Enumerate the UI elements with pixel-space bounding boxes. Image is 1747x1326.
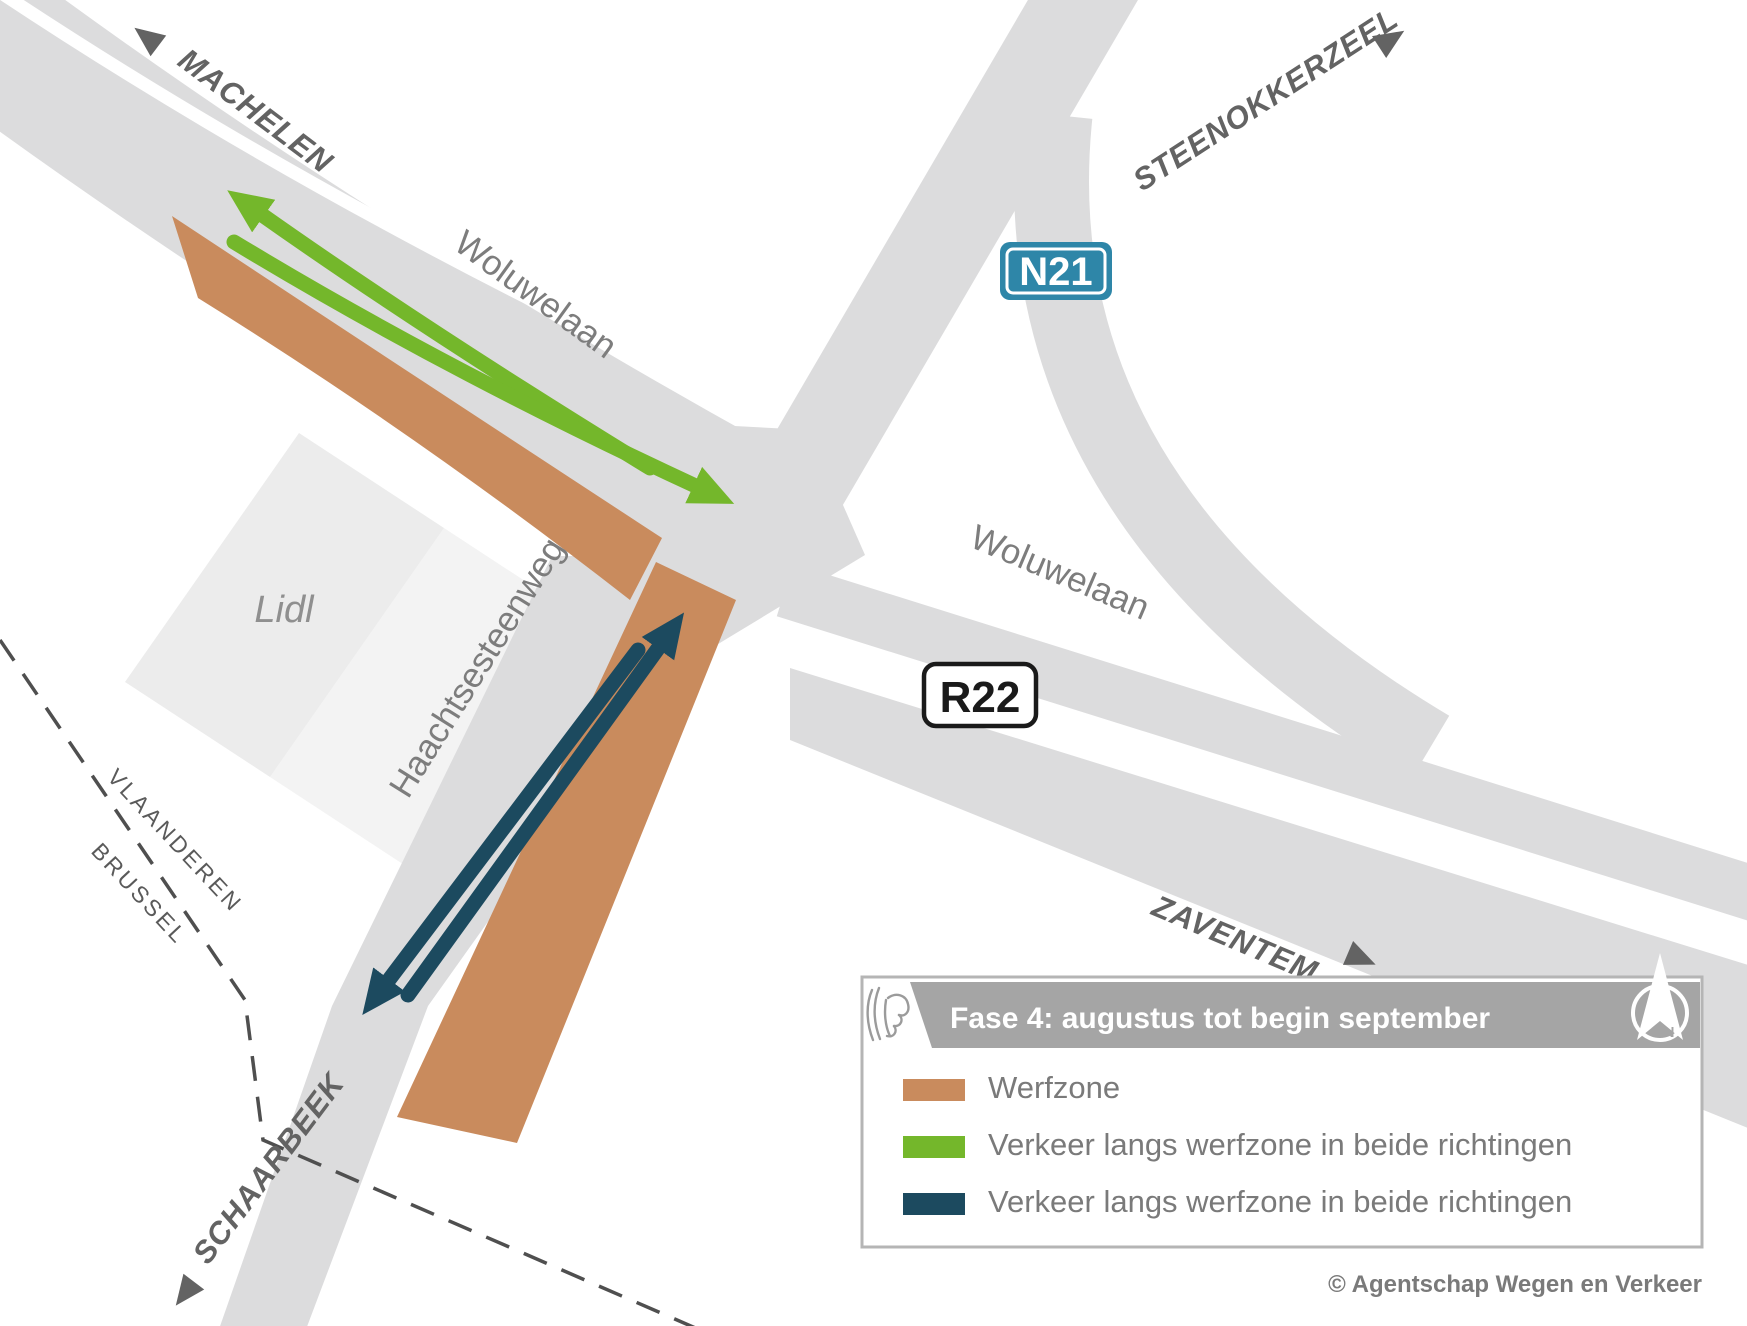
legend-label-green-route: Verkeer langs werfzone in beide richting… (988, 1127, 1572, 1162)
legend-swatch-navy-route (903, 1193, 965, 1215)
roadworks-map-screenshot: Lidl VLAANDEREN BRUSSEL Woluwelaan Woluw… (0, 0, 1747, 1326)
legend-swatch-werfzone (903, 1079, 965, 1101)
legend-label-navy-route: Verkeer langs werfzone in beide richting… (988, 1184, 1572, 1219)
n21-badge-label: N21 (1019, 250, 1092, 294)
compass-north-letter: N (1664, 1024, 1675, 1041)
legend-title: Fase 4: augustus tot begin september (950, 1002, 1490, 1035)
r22-badge-label: R22 (940, 673, 1021, 722)
roadworks-map-phase4: Lidl VLAANDEREN BRUSSEL Woluwelaan Woluw… (0, 0, 1747, 1326)
lidl-label: Lidl (254, 589, 315, 631)
legend-label-werfzone: Werfzone (988, 1070, 1120, 1105)
copyright-credit: © Agentschap Wegen en Verkeer (1328, 1271, 1702, 1298)
legend-item-green-route: Verkeer langs werfzone in beide richting… (903, 1127, 1572, 1162)
r22-badge: R22 (924, 664, 1036, 726)
legend-swatch-green-route (903, 1136, 965, 1158)
n21-badge: N21 (1000, 242, 1112, 300)
legend: Fase 4: augustus tot begin september N W… (862, 953, 1702, 1247)
legend-item-navy-route: Verkeer langs werfzone in beide richting… (903, 1184, 1572, 1219)
